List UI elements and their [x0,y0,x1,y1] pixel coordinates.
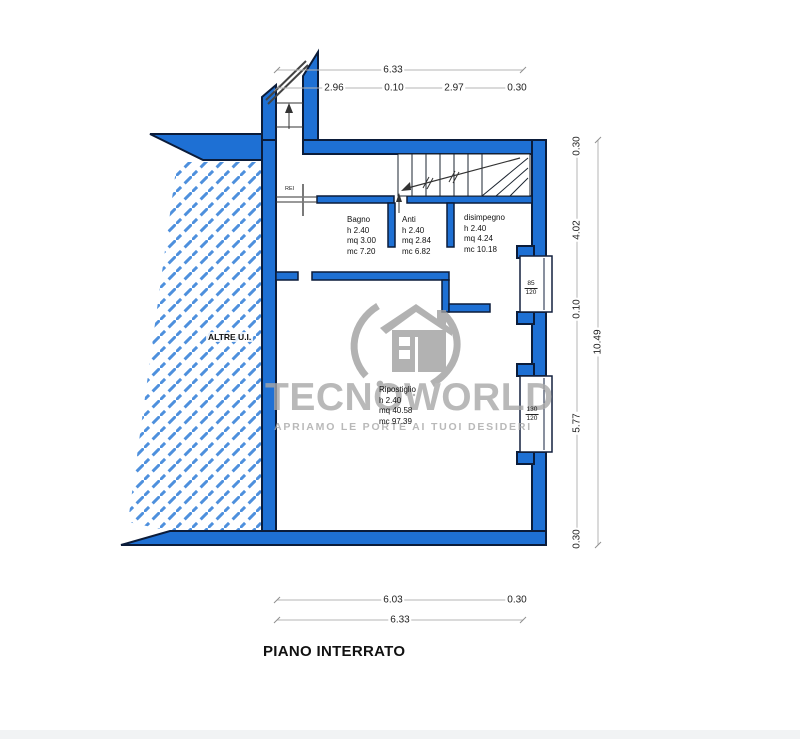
floor-plan-drawing [0,0,800,739]
staircase [396,154,530,213]
floor-plan-page: TECNOWORLD APRIAMO LE PORTE AI TUOI DESI… [0,0,800,739]
window-85x120 [520,256,552,312]
entry-arrow-icon [285,103,293,113]
hatched-zone [128,162,262,531]
fire-door [276,184,317,216]
bottom-bar [0,730,800,739]
window-130x120 [520,376,552,452]
interior-walls [276,196,532,312]
